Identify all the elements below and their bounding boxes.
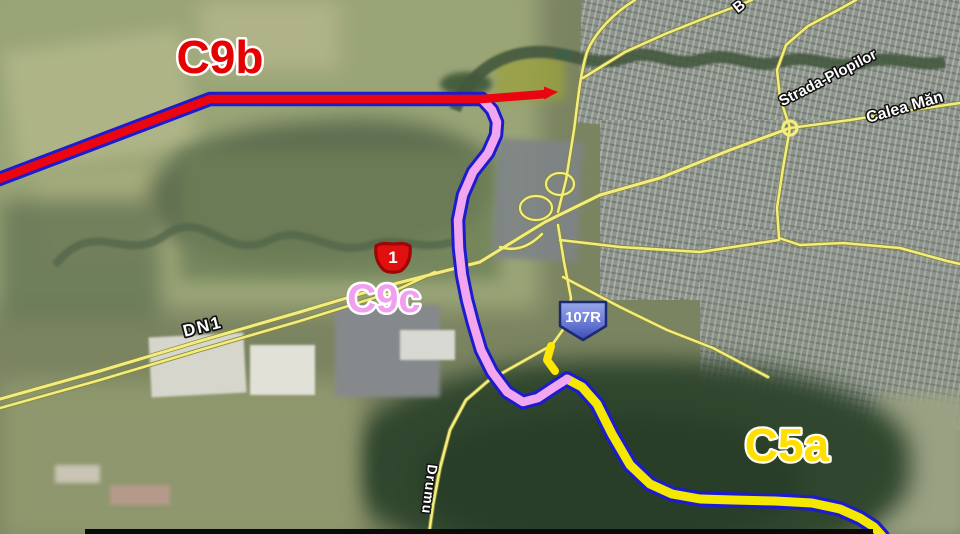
- route-c5a: [567, 379, 882, 534]
- route-c9b-casing: [0, 99, 482, 181]
- label-route-c9c: C9c: [347, 277, 420, 321]
- route-c9b-arrowhead: [544, 87, 558, 100]
- letterbox-bar: [85, 529, 873, 534]
- route-c5a-connector-stub: [547, 346, 555, 371]
- label-route-c9b: C9b: [177, 31, 264, 83]
- satellite-map: 1 107R DN1 Strada-Plopilor Calea Măn B D…: [0, 0, 960, 534]
- shield-107r-text: 107R: [565, 309, 601, 326]
- route-c5a-line: [567, 379, 882, 534]
- map-overlay: 1 107R DN1 Strada-Plopilor Calea Măn B D…: [0, 0, 960, 534]
- route-c9b: [0, 99, 482, 181]
- road-shield-107r: 107R: [560, 302, 606, 340]
- shield-1-text: 1: [388, 248, 397, 267]
- label-road-drumul: Drumu: [419, 464, 441, 516]
- label-route-c5a: C5a: [745, 419, 830, 471]
- us-route-1-shield: 1: [376, 244, 410, 273]
- label-road-calea-man: Calea Măn: [864, 89, 945, 127]
